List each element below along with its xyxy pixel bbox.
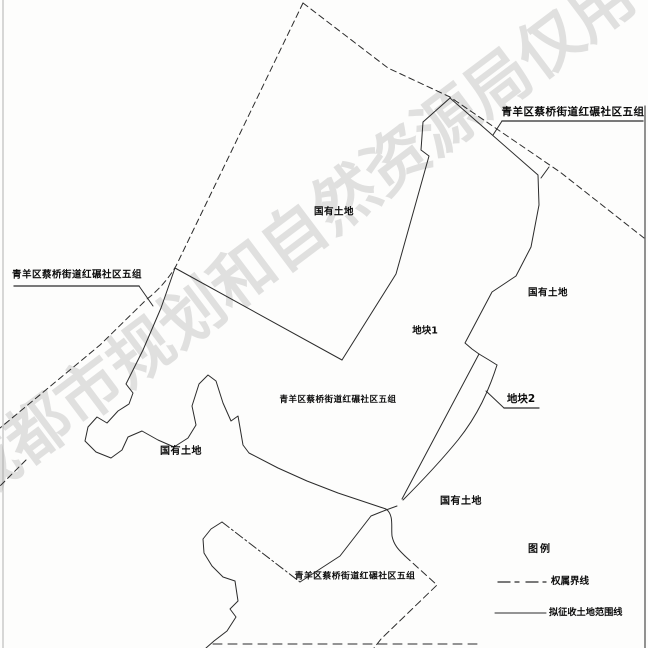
bottom-solid-line <box>300 506 397 582</box>
boundary-owner-label-left: 青羊区蔡桥街道红碾社区五组 <box>12 270 142 280</box>
parcel1-label: 地块1 <box>412 326 438 336</box>
parcel2-right-line <box>403 365 497 500</box>
state-land-label-upper: 国有土地 <box>314 207 354 217</box>
state-land-label-lower-left: 国有土地 <box>160 447 202 457</box>
legend-item-acquisition-boundary: 拟征收土地范围线 <box>549 608 623 617</box>
south-chevron-dashed <box>374 556 437 648</box>
parcel2-label-leader <box>486 391 504 408</box>
parcel2-label: 地块2 <box>507 394 535 405</box>
land-acquisition-map: 成都市规划和自然资源局仅用于 <box>0 0 648 648</box>
watermark-text: 成都市规划和自然资源局仅用于 <box>0 0 648 518</box>
legend-item-ownership-boundary: 权属界线 <box>551 577 589 587</box>
bottom-left-zigzag <box>203 522 238 648</box>
state-land-label-right: 国有土地 <box>528 288 568 298</box>
boundary-owner-label-topright: 青羊区蔡桥街道红碾社区五组 <box>502 107 645 118</box>
bottom-dashdot-line <box>222 522 300 582</box>
boundary-owner-label-central: 青羊区蔡桥街道红碾社区五组 <box>279 396 396 405</box>
state-land-label-lower-center: 国有土地 <box>440 497 482 507</box>
legend-title: 图例 <box>528 545 552 555</box>
boundary-owner-label-bottom: 青羊区蔡桥街道红碾社区五组 <box>295 573 416 582</box>
